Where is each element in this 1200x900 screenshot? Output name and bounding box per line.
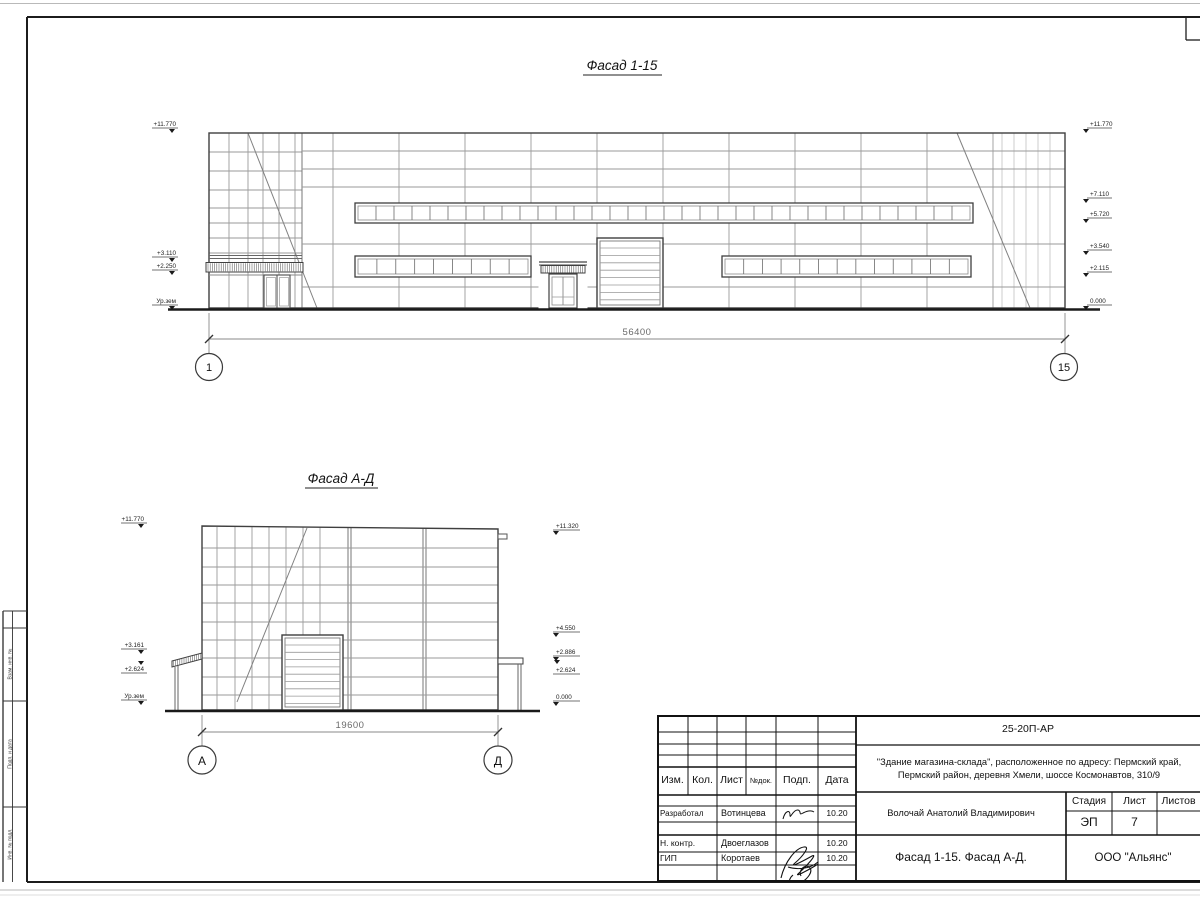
stage-header: Стадия — [1066, 792, 1112, 811]
facade-a-d-linework — [121, 488, 580, 774]
project-description: "Здание магазина-склада", расположенное … — [858, 745, 1200, 792]
elevation-label: 0.000 — [556, 694, 572, 701]
axis-bubble-d: Д — [494, 754, 502, 768]
elevation-label: +2.115 — [1090, 265, 1109, 272]
facade-a-d-title: Фасад А-Д — [308, 471, 375, 486]
side-stamp-label: Взам. инв. № — [8, 649, 14, 680]
row-ncontr-date: 10.20 — [818, 835, 856, 852]
side-stamp-label: Инв. № подл. — [8, 828, 14, 859]
elevation-label: +2.624 — [556, 667, 576, 674]
facade-1-15-view: Фасад 1-15 +11.770 +3.110 +2.250 Ур.зем … — [152, 58, 1113, 381]
elevation-label: +7.110 — [1090, 191, 1109, 198]
title-block: Изм. Кол. Лист №док. Подп. Дата Разработ… — [657, 715, 1200, 882]
elevation-label: +3.161 — [125, 642, 145, 649]
row-developed-name: Вотинцева — [718, 806, 779, 822]
row-gip-name: Коротаев — [718, 852, 779, 865]
dimension-value: 56400 — [623, 327, 652, 338]
elevation-label: +2.886 — [556, 649, 576, 656]
row-gip-date: 10.20 — [818, 852, 856, 865]
author-name: Волочай Анатолий Владимирович — [856, 792, 1066, 835]
axis-bubble-15: 15 — [1058, 362, 1070, 374]
header-ndok: №док. — [746, 767, 776, 795]
side-stamp-label: Подп. и дата — [8, 739, 14, 769]
elevation-label: +11.770 — [1090, 121, 1113, 128]
elevation-label: +5.720 — [1090, 211, 1110, 218]
elevation-label: 0.000 — [1090, 298, 1106, 305]
header-list: Лист — [717, 767, 746, 795]
document-code: 25-20П-АР — [856, 715, 1200, 745]
elevation-label: +2.250 — [157, 263, 177, 270]
row-gip-label: ГИП — [657, 852, 720, 865]
elevation-label: +11.770 — [122, 516, 145, 523]
elevation-label: +11.320 — [556, 523, 579, 530]
facade-a-d-view: Фасад А-Д +11.770 +3.161 +2.624 Ур.зем +… — [121, 471, 580, 774]
header-podp: Подп. — [776, 767, 818, 795]
elevation-label: +11.770 — [154, 121, 177, 128]
dimension-value: 19600 — [336, 720, 365, 731]
elevation-label: Ур.зем — [156, 298, 176, 305]
header-izm: Изм. — [657, 767, 688, 795]
drawing-sheet: Взам. инв. № Подп. и дата Инв. № подл. Ф… — [0, 0, 1200, 900]
company-name: ООО "Альянс" — [1066, 835, 1200, 881]
elevation-label: +3.110 — [157, 250, 176, 257]
signature-developed — [783, 810, 814, 819]
stage-value: ЭП — [1066, 811, 1112, 835]
row-ncontr-label: Н. контр. — [657, 835, 720, 852]
sheet-title: Фасад 1-15. Фасад А-Д. — [856, 835, 1066, 881]
elevation-label: +4.550 — [556, 625, 576, 632]
axis-bubble-a: А — [198, 754, 206, 768]
axis-bubble-1: 1 — [206, 362, 212, 374]
row-developed-label: Разработал — [657, 806, 720, 822]
sheet-value: 7 — [1112, 811, 1157, 835]
elevation-label: +3.540 — [1090, 243, 1110, 250]
facade-1-15-title: Фасад 1-15 — [587, 58, 658, 73]
header-data: Дата — [818, 767, 856, 795]
sheets-header: Листов — [1157, 792, 1200, 811]
row-developed-date: 10.20 — [818, 806, 856, 822]
sheet-header: Лист — [1112, 792, 1157, 811]
project-line-2: Пермский район, деревня Хмели, шоссе Кос… — [898, 770, 1160, 780]
project-line-1: "Здание магазина-склада", расположенное … — [877, 757, 1181, 767]
elevation-label: Ур.зем — [124, 693, 144, 700]
header-kol: Кол. — [688, 767, 717, 795]
row-ncontr-name: Двоеглазов — [718, 835, 779, 852]
elevation-label: +2.624 — [125, 666, 145, 673]
